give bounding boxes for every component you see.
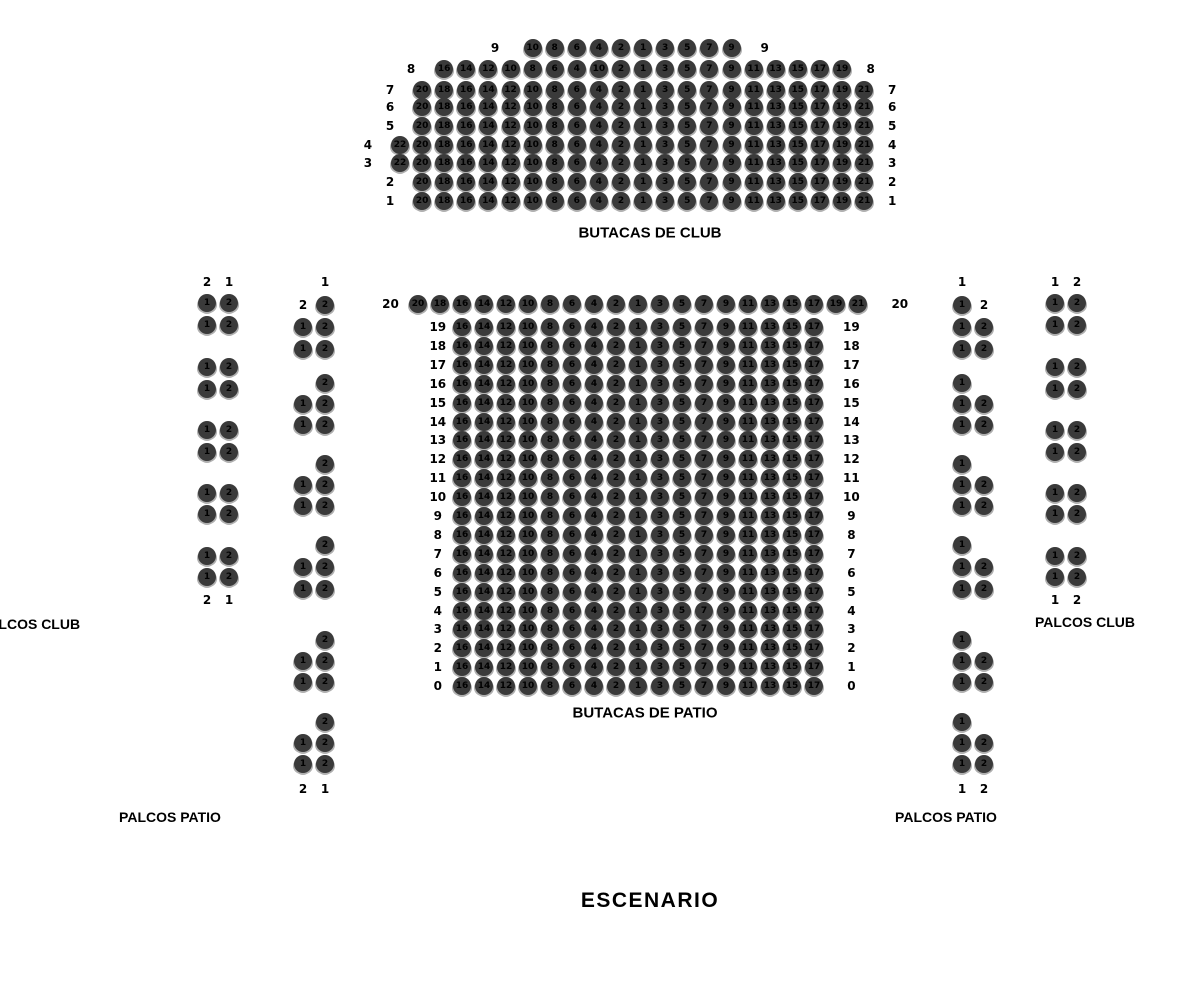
- seat[interactable]: 2: [1068, 568, 1086, 586]
- palcos-patio-left-caption: PALCOS PATIO: [119, 809, 221, 825]
- theater-seat-map: 9910864213579881614121086410213579111315…: [0, 0, 1200, 1000]
- palcos-patio-right-caption: PALCOS PATIO: [895, 809, 997, 825]
- seat[interactable]: 2: [1068, 484, 1086, 502]
- seat[interactable]: 1: [1046, 443, 1064, 461]
- seat[interactable]: 2: [1068, 358, 1086, 376]
- seat[interactable]: 1: [1046, 316, 1064, 334]
- seat[interactable]: 1: [1046, 484, 1064, 502]
- seat[interactable]: 1: [1046, 547, 1064, 565]
- palco-number-label: 2: [1073, 275, 1081, 289]
- palco-strip-right-outer: 121212121212121212121212: [0, 0, 1200, 1000]
- seat[interactable]: 1: [1046, 380, 1064, 398]
- seat[interactable]: 2: [1068, 421, 1086, 439]
- seat[interactable]: 2: [1068, 443, 1086, 461]
- seat[interactable]: 2: [1068, 316, 1086, 334]
- palcos-club-left-caption: PALCOS CLUB: [0, 616, 80, 632]
- palcos-club-right-caption: PALCOS CLUB: [1035, 614, 1135, 630]
- seat[interactable]: 1: [1046, 294, 1064, 312]
- seat[interactable]: 1: [1046, 505, 1064, 523]
- patio-section-caption: BUTACAS DE PATIO: [573, 705, 718, 722]
- palco-number-label: 1: [1051, 593, 1059, 607]
- palco-number-label: 1: [1051, 275, 1059, 289]
- stage-label: ESCENARIO: [581, 889, 719, 913]
- club-section-caption: BUTACAS DE CLUB: [578, 225, 721, 242]
- seat[interactable]: 2: [1068, 505, 1086, 523]
- palco-number-label: 2: [1073, 593, 1081, 607]
- seat[interactable]: 1: [1046, 421, 1064, 439]
- seat[interactable]: 1: [1046, 568, 1064, 586]
- seat[interactable]: 2: [1068, 294, 1086, 312]
- seat[interactable]: 2: [1068, 380, 1086, 398]
- seat[interactable]: 2: [1068, 547, 1086, 565]
- seat[interactable]: 1: [1046, 358, 1064, 376]
